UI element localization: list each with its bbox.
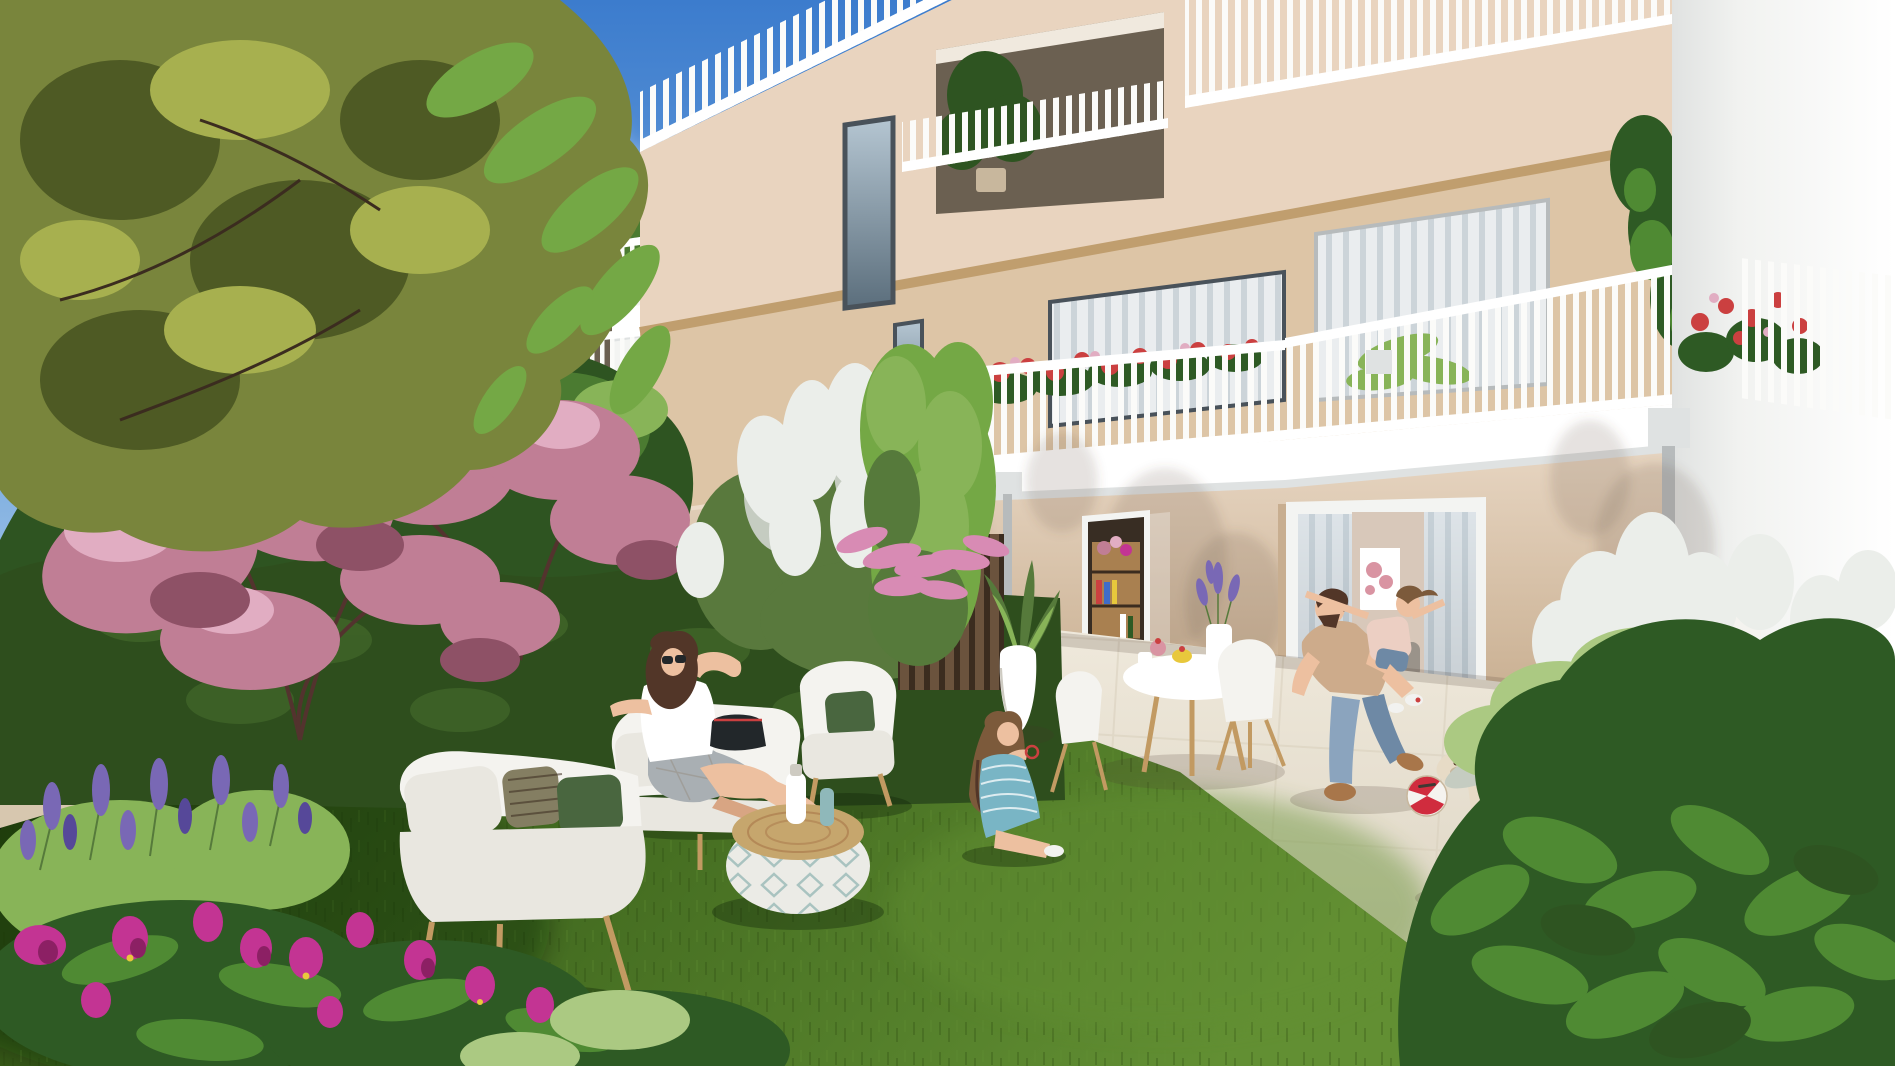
scene-canvas bbox=[0, 0, 1895, 1066]
teal-bottle bbox=[820, 788, 834, 826]
architectural-rendering bbox=[0, 0, 1895, 1066]
seat-cushion bbox=[400, 826, 646, 922]
toy-ball bbox=[1407, 776, 1447, 816]
mug-1 bbox=[1138, 652, 1152, 665]
thermos bbox=[786, 772, 806, 824]
corner-railing bbox=[1740, 258, 1895, 420]
pillow-green bbox=[556, 774, 624, 834]
wall-box-1 bbox=[996, 472, 1022, 496]
wall-lamp bbox=[1366, 350, 1392, 374]
girl-face bbox=[997, 722, 1019, 746]
wall-box-2 bbox=[1648, 408, 1690, 448]
